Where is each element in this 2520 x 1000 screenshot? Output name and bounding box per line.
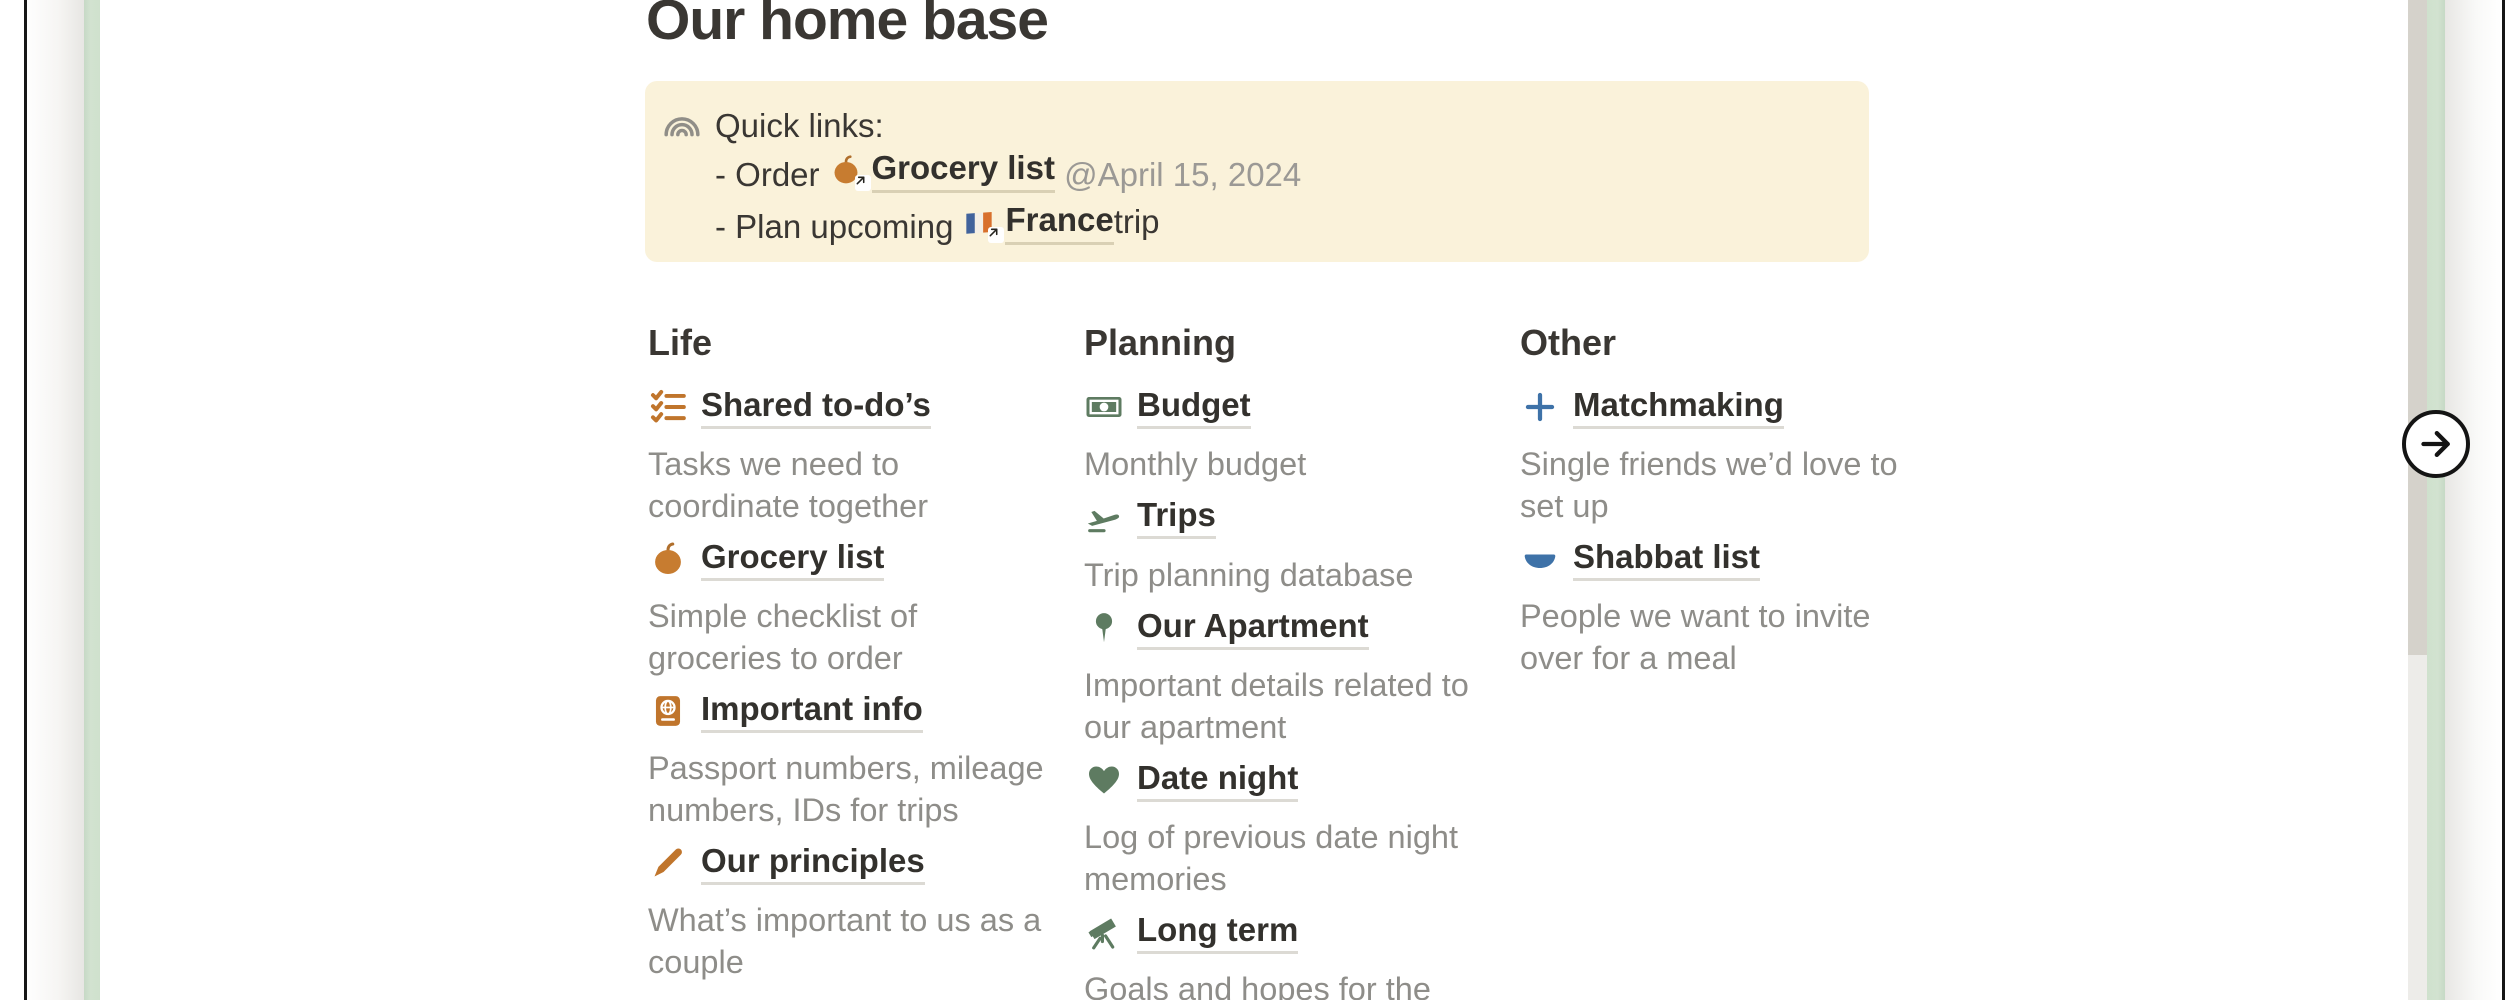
pumpkin-icon [648, 539, 688, 579]
template-preview-card: Our home base Quick links: - Order Groce… [0, 0, 2520, 1000]
passport-icon [648, 691, 688, 731]
link-description: Trip planning database [1084, 555, 1514, 597]
page-title: Our home base [646, 0, 1048, 50]
column-life: Life Shared to-do’s Tasks we need to coo… [648, 322, 1078, 994]
airplane-icon [1084, 498, 1124, 538]
grocery-list-inline-link[interactable]: Grocery list [820, 147, 1055, 193]
card-right-border [2502, 0, 2505, 1000]
section-heading: Planning [1084, 322, 1514, 364]
callout-intro: Quick links: [715, 105, 884, 147]
link-description: Log of previous date night memories [1084, 817, 1514, 900]
link-description: Single friends we’d love to set up [1520, 444, 1950, 527]
pencil-icon [648, 843, 688, 883]
pumpkin-icon [830, 154, 864, 186]
link-our-principles[interactable]: Our principles [648, 842, 1078, 884]
bowl-icon [1520, 539, 1560, 579]
callout-item-order: - Order Grocery list @April 15, 2024 [715, 147, 1301, 196]
link-shared-todos[interactable]: Shared to-do’s [648, 386, 1078, 428]
pushpin-icon [1084, 608, 1124, 648]
page-link-arrow-icon [855, 175, 871, 191]
next-button[interactable] [2402, 410, 2470, 478]
link-description: Monthly budget [1084, 444, 1514, 486]
page-link-arrow-icon [988, 227, 1004, 243]
link-matchmaking[interactable]: Matchmaking [1520, 386, 1950, 428]
link-trips[interactable]: Trips [1084, 497, 1514, 539]
section-heading: Life [648, 322, 1078, 364]
link-long-term[interactable]: Long term [1084, 911, 1514, 953]
telescope-icon [1084, 912, 1124, 952]
link-grocery-list[interactable]: Grocery list [648, 538, 1078, 580]
link-description: People we want to invite over for a meal [1520, 596, 1950, 679]
link-budget[interactable]: Budget [1084, 386, 1514, 428]
link-description: What’s important to us as a couple [648, 900, 1078, 983]
plus-icon [1520, 387, 1560, 427]
link-our-apartment[interactable]: Our Apartment [1084, 607, 1514, 649]
callout-item-trip: - Plan upcoming France trip [715, 199, 1160, 248]
section-heading: Other [1520, 322, 1950, 364]
arrow-right-icon [2416, 424, 2456, 464]
heart-icon [1084, 760, 1124, 800]
quick-links-callout: Quick links: - Order Grocery list @April… [645, 81, 1869, 262]
france-inline-link[interactable]: France trip [953, 199, 1159, 245]
date-mention[interactable]: @April 15, 2024 [1055, 156, 1301, 193]
page-stack-right [2445, 0, 2502, 1000]
checklist-icon [648, 387, 688, 427]
france-flag-icon [963, 206, 997, 238]
page-stack-left [27, 0, 84, 1000]
link-description: Simple checklist of groceries to order [648, 596, 1078, 679]
rainbow-icon [662, 103, 702, 143]
link-date-night[interactable]: Date night [1084, 759, 1514, 801]
link-description: Goals and hopes for the [1084, 969, 1514, 1000]
link-description: Passport numbers, mileage numbers, IDs f… [648, 748, 1078, 831]
page-shadow-right [2408, 0, 2427, 1000]
page-edge-green-right [2427, 0, 2445, 1000]
link-description: Tasks we need to coordinate together [648, 444, 1078, 527]
page-edge-green-left [84, 0, 100, 1000]
link-description: Important details related to our apartme… [1084, 665, 1514, 748]
link-shabbat-list[interactable]: Shabbat list [1520, 538, 1950, 580]
column-other: Other Matchmaking Single friends we’d lo… [1520, 322, 1950, 690]
column-planning: Planning Budget Monthly budget Trips Tr [1084, 322, 1514, 1000]
link-important-info[interactable]: Important info [648, 690, 1078, 732]
money-icon [1084, 387, 1124, 427]
